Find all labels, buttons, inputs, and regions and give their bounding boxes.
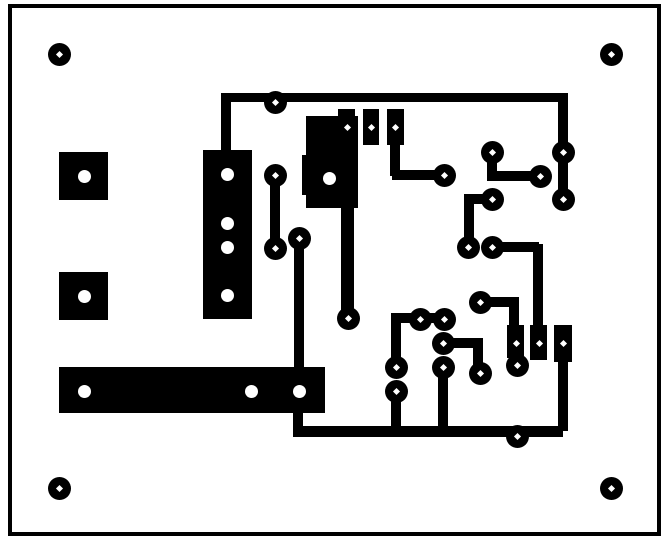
trace-segment bbox=[221, 93, 231, 151]
pad-hole-circle bbox=[293, 385, 306, 398]
trace-segment bbox=[533, 244, 543, 326]
rect-pad bbox=[59, 367, 325, 413]
pad-hole-circle bbox=[78, 290, 91, 303]
pad-hole-circle bbox=[221, 217, 234, 230]
pad-hole-circle bbox=[323, 172, 336, 185]
rect-pad bbox=[302, 155, 307, 195]
board-outline bbox=[8, 4, 661, 536]
pad-hole-circle bbox=[78, 170, 91, 183]
trace-segment bbox=[341, 207, 354, 319]
trace-segment bbox=[509, 297, 519, 326]
pcb-board bbox=[0, 0, 669, 547]
trace-segment bbox=[293, 426, 517, 437]
pad-hole-circle bbox=[221, 289, 234, 302]
trace-segment bbox=[294, 238, 304, 368]
pad-hole-circle bbox=[245, 385, 258, 398]
pad-hole-circle bbox=[78, 385, 91, 398]
pad-hole-circle bbox=[221, 168, 234, 181]
trace-segment bbox=[558, 358, 568, 431]
pad-hole-circle bbox=[221, 241, 234, 254]
